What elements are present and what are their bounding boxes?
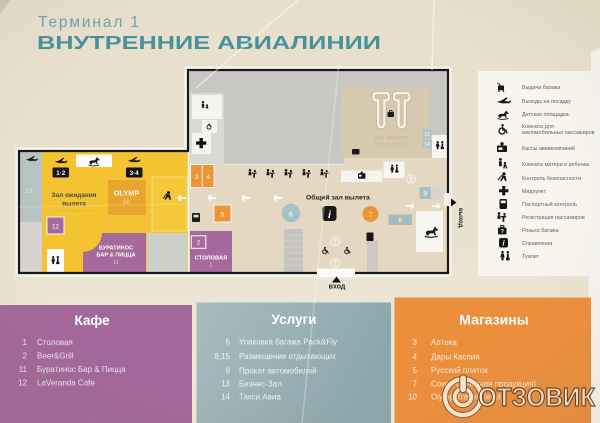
svg-text:ОТЗОВИК: ОТЗОВИК	[478, 382, 595, 412]
